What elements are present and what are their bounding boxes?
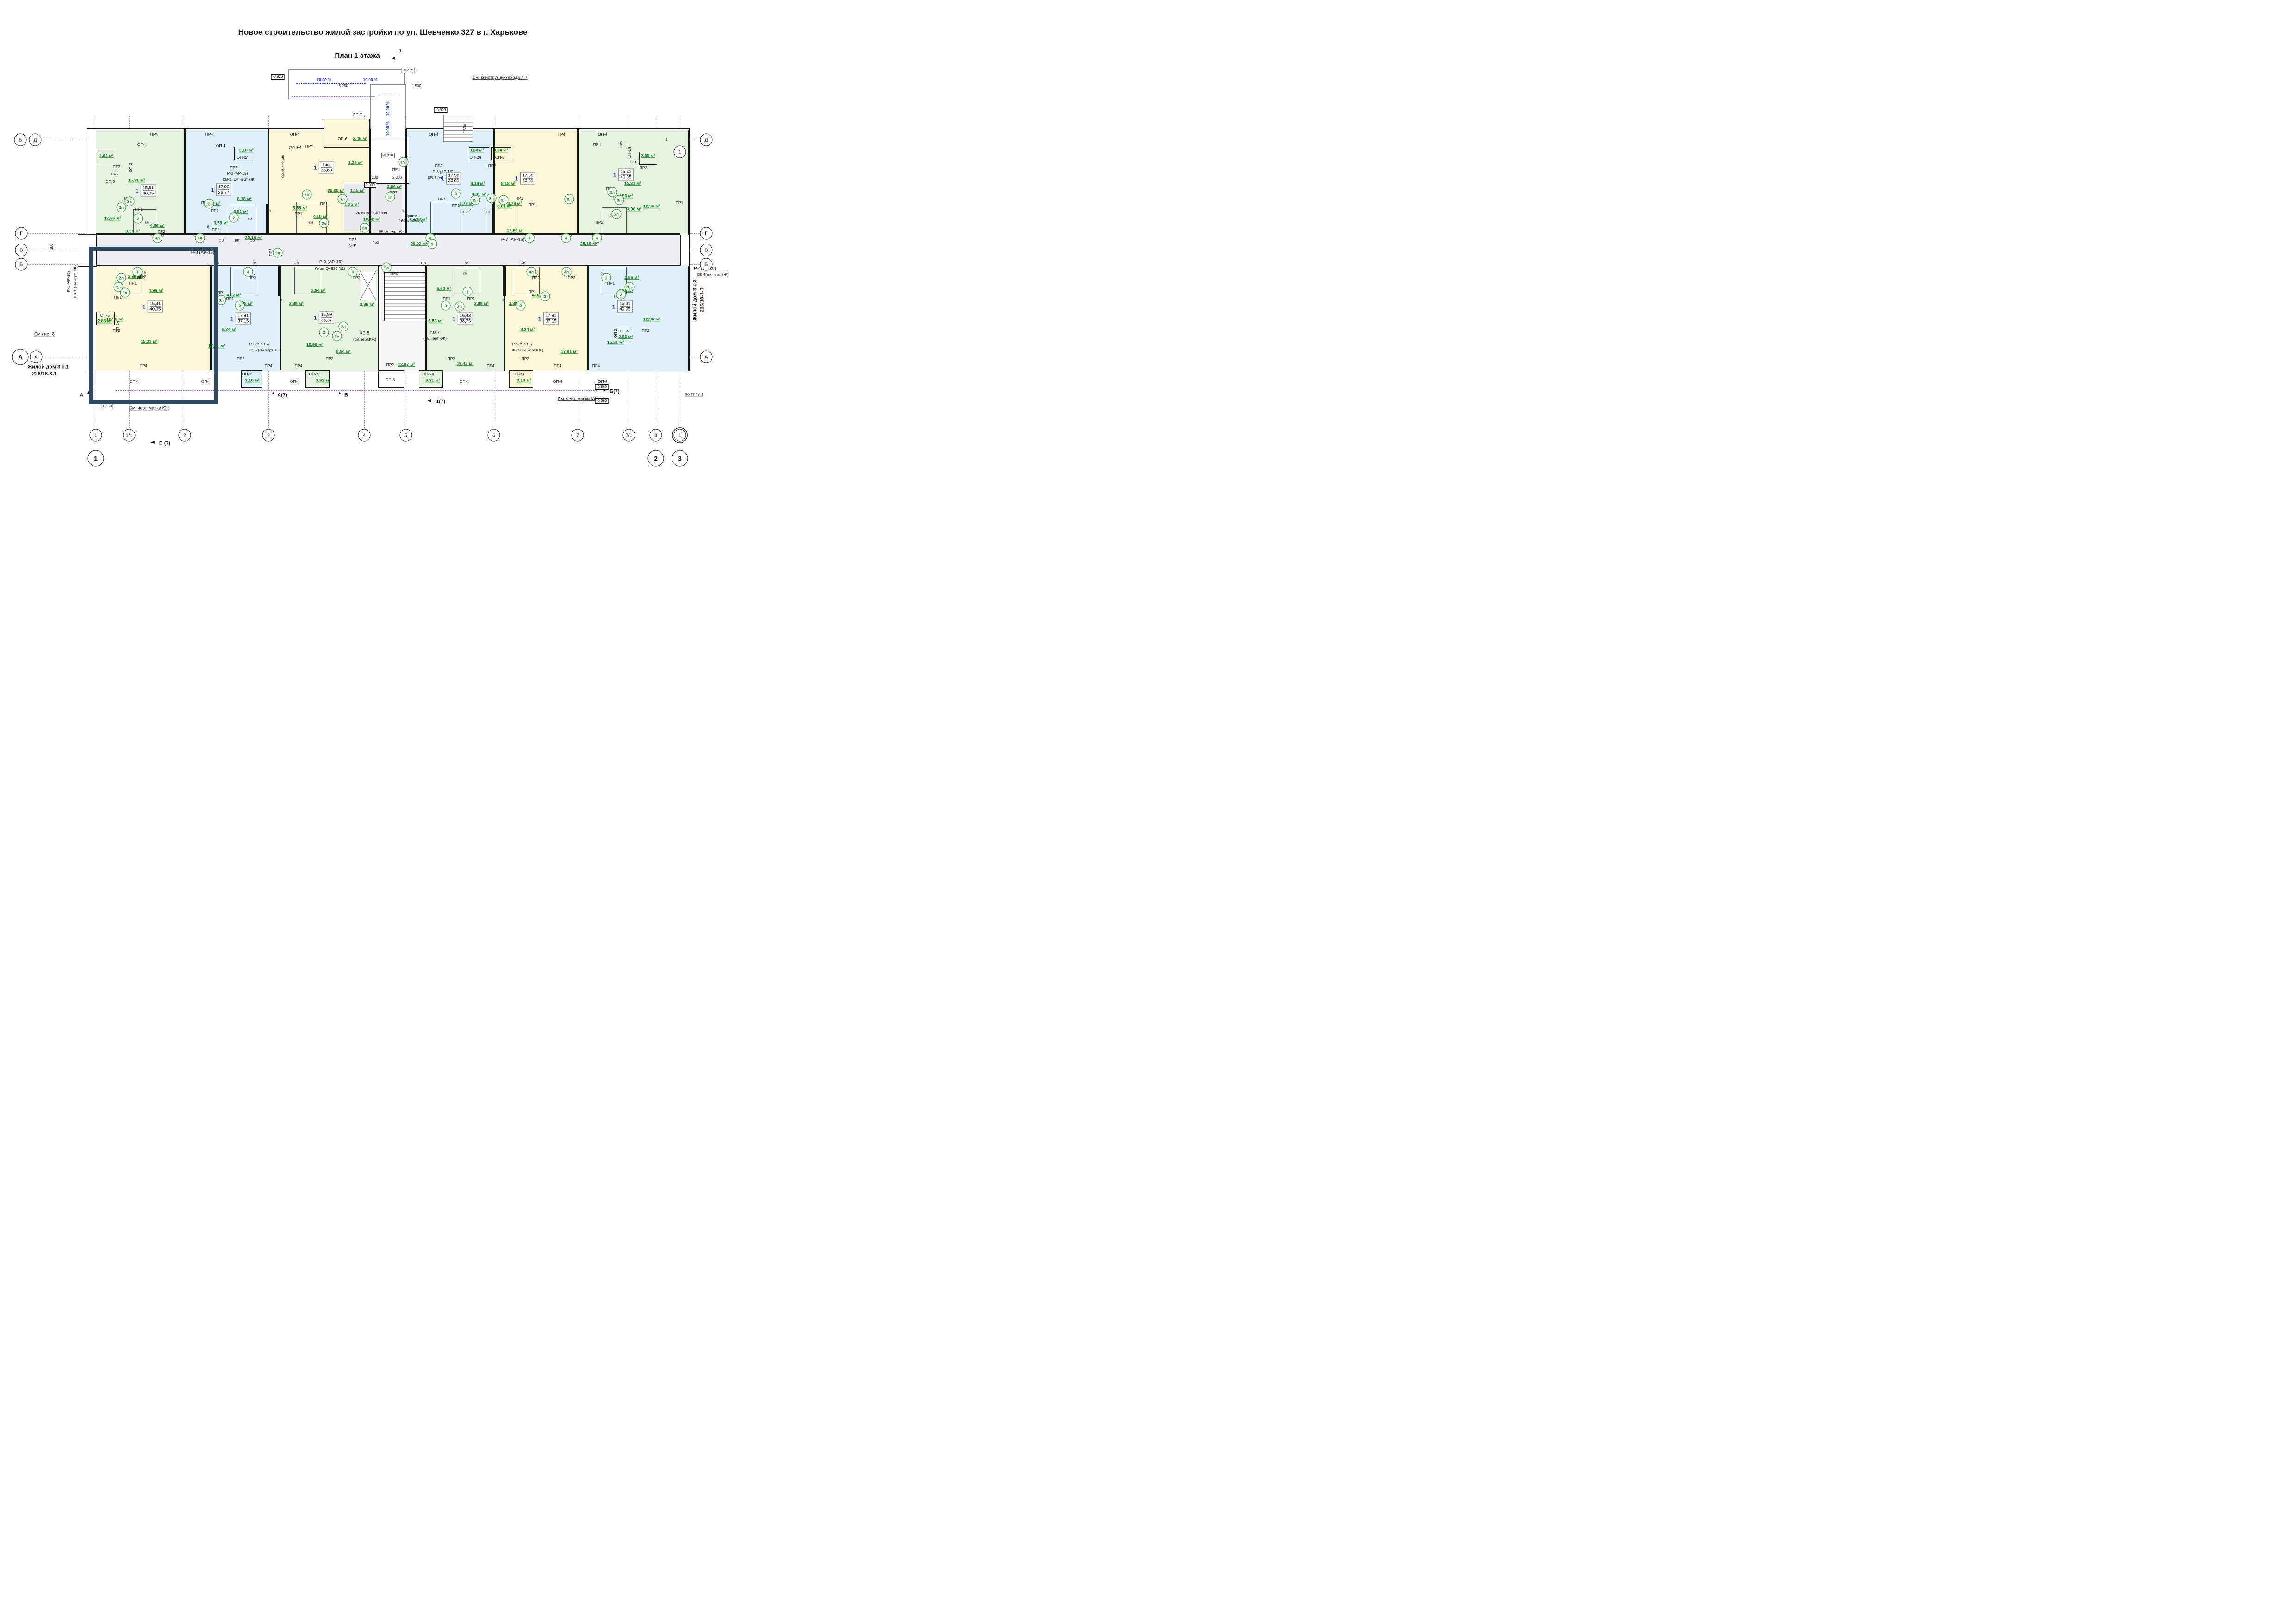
room-tag-circle: 3л [338, 194, 348, 204]
plan-label: ПР2 [619, 141, 623, 149]
plan-label: ОП-4 [598, 132, 607, 137]
plan-label: 17,91 м² [561, 350, 578, 354]
plan-label: См. черт. марки КЖ [558, 397, 597, 401]
axis-circle: Д [700, 134, 713, 146]
plan-label: 3,86 м² [360, 302, 374, 307]
plan-label: ▲ [337, 391, 342, 396]
plan-label: КВ-4(см.черт.КЖ) [697, 273, 728, 277]
plan-label: 380 [50, 244, 54, 250]
plan-label: ПР1 [452, 204, 460, 208]
axis-circle: 1 [674, 146, 686, 158]
stairs-block [443, 115, 473, 142]
plan-label: ПР1 [443, 297, 451, 301]
plan-label: 5 [469, 207, 471, 211]
plan-label: 3,86 м² [387, 185, 401, 189]
plan-label: Р-7 (АР-15) [501, 237, 524, 242]
room-tag-circle: 3л [125, 197, 135, 206]
apartment-id-box: 116,4338,75 [453, 312, 473, 325]
plan-label: 12,96 м² [104, 216, 121, 221]
plan-label: ПР1 [295, 212, 303, 216]
plan-label: ОП-4 [429, 132, 438, 137]
room-tag-circle: 1*л [399, 157, 409, 167]
plan-label: ОП-4 [137, 143, 147, 147]
plan-label: ПР2 [249, 276, 256, 280]
plan-label: см [145, 220, 149, 224]
plan-label: ОП-5 [106, 180, 115, 184]
plan-label: ПР4 [294, 145, 302, 150]
plan-label: ОВ [250, 238, 255, 242]
plan-label: 5 [162, 233, 164, 237]
wall [378, 266, 379, 370]
plan-label: Р-9 (АР-15) [319, 260, 342, 264]
total-area-value: 36,77 [218, 190, 229, 195]
plan-label: Жилой дом 3 с.3 [693, 279, 698, 320]
room-tag-circle: 3л [608, 187, 617, 197]
plan-label: 10,00 % [317, 78, 331, 82]
plan-label: А(7) [277, 393, 287, 398]
total-area-value: 36,37 [321, 318, 332, 323]
plan-label: ПР4 [392, 168, 400, 172]
plan-label: ОП-4 [216, 144, 225, 148]
plan-label: 3 [502, 298, 504, 302]
plan-label: ПР2 [596, 220, 604, 225]
living-area-value: 15/5 [321, 162, 332, 168]
room-tag-circle: 3л [117, 203, 126, 212]
plan-label: 460 [373, 241, 379, 244]
plan-label: ОП-2 [129, 163, 133, 172]
plan-label: 3,24 м² [469, 148, 484, 153]
room-tag-circle: 4 [525, 233, 535, 243]
plan-label: 226/18-3-1 [32, 372, 56, 377]
plan-label: 3,88 м² [474, 301, 488, 306]
apartment-area-fraction: 15,3140,05 [618, 169, 634, 181]
room-tag-circle: 3 [441, 301, 451, 311]
plan-label: ◀ [151, 440, 155, 445]
plan-label: ◀ [428, 399, 431, 403]
plan-label: ПР2 [237, 357, 245, 361]
room-tag-circle: 3л [625, 282, 635, 292]
plan-label: ПР4 [487, 364, 495, 368]
plan-label: 3,96 м² [125, 229, 140, 234]
axis-circle: Б [700, 258, 713, 271]
room-tag-circle: 2л [471, 195, 480, 205]
plan-label: ПР4 [265, 364, 273, 368]
room-tag-circle: 2 [229, 213, 239, 223]
plan-label: ПР2 [386, 363, 394, 367]
plan-label: 2 300 [392, 176, 402, 180]
plan-label: ВК [252, 261, 256, 265]
total-area-value: 38,75 [460, 319, 471, 324]
plan-label: кухня - ниша [280, 155, 285, 178]
plan-label: ОП-2л [422, 372, 434, 376]
living-area-value: 15,99 [321, 312, 332, 318]
plan-label: 26,02 м² [411, 242, 428, 246]
total-area-value: 40,05 [143, 191, 154, 196]
plan-label: ПР4 [205, 132, 213, 137]
plan-label: ПР2 [212, 228, 220, 232]
total-area-value: 40,05 [619, 307, 630, 312]
plan-label: ОП-2л [236, 156, 248, 160]
section-mark-number: 1 [399, 48, 402, 54]
room-tag-circle: 4 [348, 267, 358, 277]
room-tag-circle: 2л [339, 322, 348, 331]
apartment-area-fraction: 15/535,80 [318, 162, 334, 174]
plan-label: ПР1 [467, 297, 475, 301]
apartment-area-fraction: 16,4338,75 [457, 312, 473, 325]
axis-circle: Г [15, 227, 28, 240]
apartment-number: 1 [515, 175, 518, 181]
plan-label: ПР2 [522, 357, 529, 361]
plan-label: ВК [464, 261, 468, 265]
plan-label: ОП-7 [353, 113, 362, 117]
plan-label: см [309, 220, 313, 224]
plan-label: 20,00 м² [328, 188, 345, 193]
plan-label: ПР2 [488, 164, 496, 168]
plan-label: Р-5(АР-15) [512, 342, 532, 346]
room-tag-circle: 3 [205, 199, 214, 209]
plan-label: ПР4 [554, 364, 562, 368]
apartment-id-box: 115,3140,05 [613, 169, 634, 181]
axis-circle: 1 [674, 429, 686, 442]
plan-label: 10,00 % [363, 78, 377, 82]
room-tag-circle: 3 [541, 292, 550, 301]
plan-label: ОП-3 [386, 378, 395, 382]
room-tag-circle: 2л [319, 219, 329, 228]
plan-label: 3,78 м² [213, 221, 228, 225]
room-tag-circle: 3 [616, 290, 626, 300]
room-tag-circle: 3л [302, 190, 312, 200]
plan-label: -0,920 [434, 107, 448, 113]
apartment-area-fraction: 17,9036,91 [520, 172, 535, 185]
room-tag-circle: 3л [332, 331, 342, 341]
plan-label: 15,31 м² [607, 340, 624, 345]
plan-label: ОП-2 [242, 372, 251, 376]
plan-label: 1 500 [463, 124, 467, 133]
plan-label: 12,87 м² [398, 362, 415, 367]
plan-label: 3,88 м² [289, 301, 303, 306]
room-tag-circle: 2л [499, 195, 509, 205]
plan-label: ОП-4 [290, 380, 299, 384]
plan-label: ОП-4 [553, 380, 562, 384]
plan-label: 780 [288, 146, 294, 150]
plan-label: 1 500 [412, 84, 421, 88]
plan-label: 17,90 м² [410, 217, 427, 222]
room-tag-circle: 4л [527, 267, 536, 277]
room-tag-circle: 5л [382, 263, 392, 273]
apartment-area-fraction: 17,9137,15 [543, 312, 559, 325]
plan-label: КВ-2 (см.черт.КЖ) [223, 177, 255, 181]
room-tag-circle: 2 [516, 301, 526, 311]
elevator-shaft [360, 271, 376, 300]
section-mark-arrow-icon: ◄ [391, 56, 396, 61]
plan-label: ПР4 [150, 132, 158, 137]
apartment-id-box: 117,9036,77 [211, 184, 231, 196]
total-area-value: 40,05 [620, 175, 631, 180]
plan-label: ОВ [294, 261, 299, 265]
plan-label: КВ-7 [430, 330, 440, 335]
apartment-number: 1 [136, 187, 139, 194]
total-area-value: 35,80 [321, 168, 332, 173]
plan-label: 8,24 м² [222, 327, 236, 332]
wall [278, 266, 281, 296]
plan-label: Р-1 (АР-15) [67, 271, 71, 292]
wall [425, 266, 427, 370]
plan-label: 3 [269, 209, 271, 212]
plan-label: 0,000 [364, 182, 376, 188]
plan-label: 8,94 м² [336, 350, 350, 354]
plan-label: 8,53 м² [428, 319, 442, 324]
plan-label: ОП-6 [338, 137, 347, 141]
plan-label: Б(7) [610, 389, 619, 394]
total-area-value: 36,91 [522, 179, 533, 184]
apartment-id-box: 115,3140,05 [612, 300, 633, 313]
total-area-value: 37,15 [237, 319, 249, 324]
plan-label: ОП-5 [630, 160, 640, 164]
axis-circle: Д [29, 134, 42, 146]
plan-label: ПР2 [460, 210, 468, 214]
plan-label: 5 250 [339, 84, 348, 88]
plan-label: 8,18 м² [501, 181, 515, 186]
apartment-area-fraction: 15,3140,05 [140, 185, 156, 197]
plan-label: 25,19 м² [580, 242, 597, 246]
living-area-value: 17,91 [545, 313, 556, 319]
plan-label: 16,43 м² [457, 362, 474, 366]
plan-label: 1 [666, 138, 667, 142]
plan-label: 17,90 м² [507, 228, 524, 233]
room-tag-circle: 3л [455, 302, 465, 312]
plan-label: ПР1 [529, 290, 536, 294]
living-area-value: 15,31 [619, 301, 630, 307]
plan-label: КВ-1 (см.черт.КЖ) [73, 265, 77, 298]
wall [587, 266, 589, 370]
plan-label: 2,86 м² [641, 154, 655, 158]
room-tag-circle: 3л [487, 194, 497, 203]
axis-circle: Б [15, 258, 28, 271]
apartment-area-fraction: 17,9137,15 [235, 312, 251, 325]
plan-label: См. черт. марки КЖ [129, 406, 169, 411]
room-tag-circle: 9л [273, 248, 283, 258]
plan-label: ОП-4 [598, 380, 607, 384]
living-area-value: 17,90 [448, 173, 459, 179]
room-tag-circle: 3 [319, 328, 329, 337]
plan-label: 3,94 м² [311, 288, 325, 293]
plan-label: ПР6 [349, 238, 357, 242]
plan-label: 2,46 м² [353, 137, 367, 141]
room-tag-circle: 2 [463, 287, 473, 297]
plan-label: 10,00 % [386, 101, 390, 116]
plan-label: КВ-5(см.черт.КЖ) [512, 348, 543, 352]
plan-label: ▲ [271, 391, 275, 396]
plan-label: ПР1 [218, 291, 225, 295]
plan-label: Б [344, 393, 348, 398]
plan-label: ПР2 [435, 164, 443, 168]
plan-label: ОП-5 [620, 329, 629, 333]
plan-label: ОП-4 [460, 380, 469, 384]
apartment-number: 1 [314, 164, 317, 171]
apartment-number: 1 [453, 315, 456, 322]
plan-label: ОП-2л [469, 156, 481, 160]
axis-circle: А [700, 351, 713, 363]
room-tag-circle: 3 [451, 189, 461, 199]
plan-label: А [80, 393, 83, 398]
plan-label: ПР см. черт. КЖ [379, 230, 404, 233]
plan-label: 8,18 м² [237, 197, 251, 201]
plan-label: 12,96 м² [643, 317, 660, 322]
room-tag-circle: 4 [243, 267, 253, 277]
plan-label: ПР2 [486, 210, 494, 214]
plan-label: ПР4 [305, 144, 313, 149]
apartment-id-box: 117,9036,91 [515, 172, 535, 185]
total-area-value: 37,15 [545, 319, 556, 324]
plan-label: 8,18 м² [470, 181, 485, 186]
plan-label: по типу 1 [685, 392, 704, 397]
plan-label: ПР1 [438, 197, 446, 201]
plan-label: ПР1 [320, 202, 328, 206]
plan-label: См.лист 8 [34, 332, 55, 337]
plan-label: 5 [207, 225, 209, 229]
plan-label: 226/18-3-3 [700, 287, 705, 312]
room-tag-circle: 2 [133, 214, 143, 224]
plan-label: ПР2 [640, 166, 647, 170]
room-tag-circle: 4л [153, 233, 162, 243]
room-tag-circle: 2 [602, 273, 611, 283]
plan-label: ПР2 [230, 166, 238, 170]
wall [492, 204, 495, 234]
apartment-number: 1 [230, 315, 234, 322]
apartment-id-box: 115,3140,05 [136, 185, 156, 197]
plan-label: ОВ [421, 261, 426, 265]
plan-label: ОВ [521, 261, 526, 265]
axis-circle: 1/1 [123, 429, 136, 442]
plan-label: В (7) [159, 441, 170, 446]
room-tag-circle: 3л [615, 195, 624, 205]
plan-label: ОП-2л [628, 147, 632, 158]
plan-label: 3,10 м² [239, 148, 253, 153]
wall [184, 129, 186, 234]
plan-label: ВК [235, 238, 239, 242]
plan-label: -0,860 [595, 384, 609, 390]
stairs-block [384, 272, 426, 321]
plan-label: ПР1 [135, 207, 143, 212]
apartment-id-box: 117,9137,15 [230, 312, 251, 325]
plan-label: ПР2 [532, 276, 540, 280]
plan-label: 3,96 м² [627, 207, 641, 212]
axis-circle: 1 [90, 429, 102, 442]
plan-label: ПР4 [558, 132, 566, 137]
plan-label: -0,020 [381, 153, 395, 158]
plan-label: ПР5 [391, 271, 398, 275]
plan-label: ПР2 [448, 357, 455, 361]
plan-label: 6,60 м² [436, 287, 451, 291]
axis-circle: Б [14, 134, 27, 146]
axis-circle: В [15, 244, 28, 256]
plan-label: 3,10 м² [245, 378, 259, 383]
ramp-slope-line [296, 83, 366, 84]
plan-label: ПР1 [226, 297, 234, 301]
living-area-value: 15,31 [620, 169, 631, 175]
apartment-number: 1 [612, 303, 616, 310]
wall [577, 129, 579, 234]
room-tag-circle: 4л [562, 267, 572, 277]
room-tag-circle: 9 [428, 239, 437, 249]
apartment-area-fraction: 15,3140,05 [617, 300, 633, 313]
living-area-value: 16,43 [460, 313, 471, 319]
plan-label: 4,96 м² [150, 224, 164, 228]
room-tag-circle: 1л [386, 192, 395, 202]
plan-label: см [463, 271, 467, 275]
plan-label: ПР6 [269, 249, 273, 256]
room-tag-circle: 8л [360, 223, 370, 233]
plan-label: ОП-2л [309, 372, 320, 376]
plan-label: 3,96 м² [624, 275, 639, 280]
plan-label: 8,24 м² [520, 327, 535, 332]
plan-label: ПР4 [295, 364, 303, 368]
axis-circle: 3 [672, 450, 688, 467]
axis-circle: 7/1 [623, 429, 635, 442]
plan-label: 1,25 м² [344, 202, 359, 207]
axis-circle: 1 [88, 450, 104, 467]
axis-circle: А [30, 351, 43, 363]
wall [503, 266, 506, 296]
room-tag-circle: 4 [592, 233, 602, 243]
plan-label: ОВ [219, 238, 224, 242]
plan-label: ОП-4 [290, 132, 299, 137]
apartment-area-fraction: 17,9036,77 [216, 184, 231, 196]
apartment-area-fraction: 17,9036,91 [446, 172, 461, 185]
plan-label: 3 [402, 209, 404, 212]
axis-circle: 6 [488, 429, 500, 442]
plan-label: Р-2 (АР-15) [227, 171, 248, 175]
plan-label: (см.черт.КЖ) [353, 337, 376, 342]
axis-circle: 2 [179, 429, 191, 442]
apartment-number: 1 [613, 171, 616, 178]
room-tag-circle: 4 [561, 233, 571, 243]
ramp-slope-line [379, 93, 397, 93]
plan-label: ЭТР [349, 244, 356, 247]
apartment-id-box: 117,9036,91 [441, 172, 461, 185]
plan-label: КВ-8 [360, 331, 369, 336]
room-tag-circle: 4л [195, 233, 205, 243]
plan-label: 1,15 м² [350, 188, 364, 193]
plan-label: 1(7) [436, 400, 445, 405]
axis-circle: А [12, 349, 29, 365]
selection-highlight [89, 247, 218, 404]
plan-label: ПР1 [529, 203, 536, 207]
plan-label: 2,86 м² [618, 335, 633, 339]
apartment-number: 1 [314, 314, 317, 321]
plan-label: 3,78 м² [507, 201, 522, 206]
plan-label: ПР4 [592, 364, 600, 368]
axis-circle: 8 [650, 429, 662, 442]
plan-label: ОП-2 [614, 329, 618, 338]
plan-label: 3,10 м² [516, 378, 531, 383]
apartment-area-fraction: 15,9936,37 [318, 312, 334, 324]
plan-label: ПР2 [568, 276, 576, 280]
axis-circle: 2 [648, 450, 664, 467]
plan-label: 15,31 м² [128, 178, 145, 183]
plan-label: 3 [280, 298, 282, 302]
total-area-value: 36,91 [448, 179, 459, 184]
plan-label: 2,86 м² [99, 154, 113, 158]
plan-label: ПР4 [593, 143, 601, 147]
plan-label: 10,00 % [386, 121, 390, 136]
axis-circle: 4 [358, 429, 371, 442]
living-area-value: 15,31 [143, 186, 154, 191]
plan-label: Электрощитовая [356, 211, 387, 215]
axis-circle: 5 [400, 429, 412, 442]
plan-label: ПР1 [516, 196, 523, 200]
plan-label: -0,920 [271, 74, 285, 80]
